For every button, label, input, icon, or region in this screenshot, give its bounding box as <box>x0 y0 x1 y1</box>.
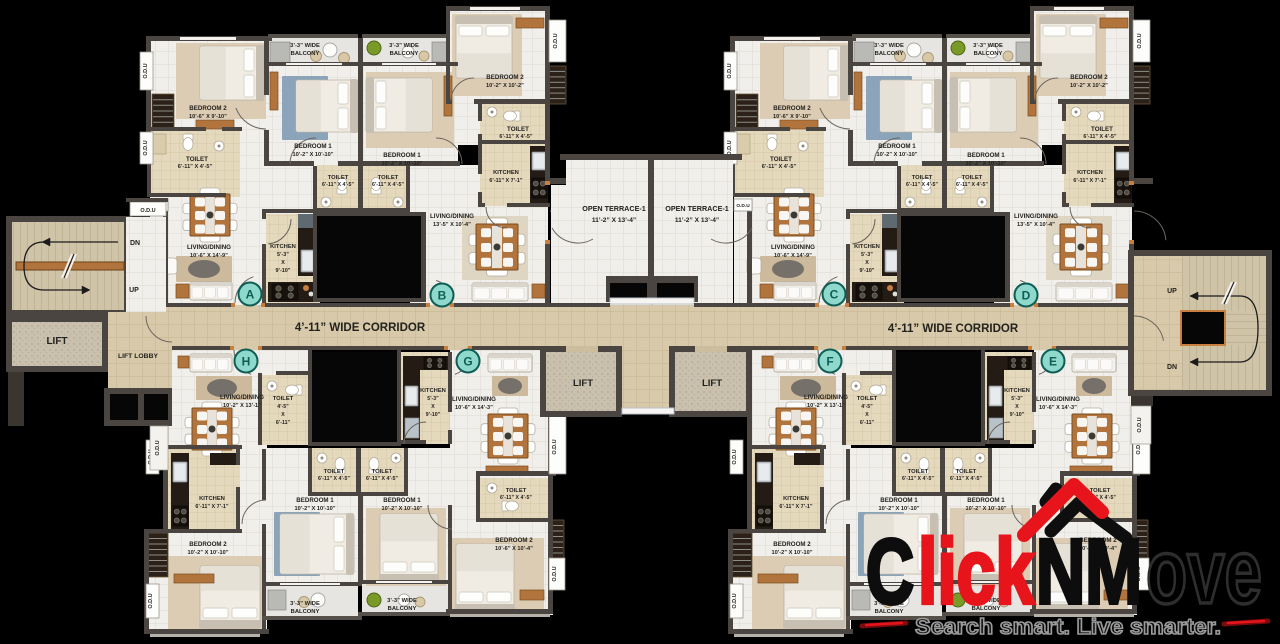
svg-text:BEDROOM 2: BEDROOM 2 <box>486 74 524 81</box>
svg-text:6’-11” X 4’-5”: 6’-11” X 4’-5” <box>318 476 350 482</box>
svg-text:6’-11” X 4’-5”: 6’-11” X 4’-5” <box>322 182 354 188</box>
svg-text:OPEN TERRACE-1: OPEN TERRACE-1 <box>582 204 646 213</box>
svg-text:H: H <box>242 355 251 369</box>
svg-text:10’-2” X 10’-10”: 10’-2” X 10’-10” <box>187 550 228 556</box>
svg-text:BEDROOM 1: BEDROOM 1 <box>383 152 421 159</box>
svg-text:BEDROOM 2: BEDROOM 2 <box>189 541 227 548</box>
svg-text:10’-6” X 14’-9”: 10’-6” X 14’-9” <box>190 253 228 259</box>
svg-text:LIFT LOBBY: LIFT LOBBY <box>118 353 158 360</box>
svg-text:TOILET: TOILET <box>324 469 345 475</box>
svg-text:BEDROOM 1: BEDROOM 1 <box>383 497 421 504</box>
svg-text:LIFT: LIFT <box>573 378 593 389</box>
svg-text:X: X <box>431 404 435 410</box>
svg-text:BEDROOM 2: BEDROOM 2 <box>189 105 227 112</box>
svg-text:TOILET: TOILET <box>328 175 349 181</box>
svg-text:TOILET: TOILET <box>507 126 529 133</box>
svg-text:BALCONY: BALCONY <box>388 606 417 612</box>
svg-text:10’-6” X 14’-3”: 10’-6” X 14’-3” <box>455 405 493 411</box>
svg-text:LIVING/DINING: LIVING/DINING <box>187 244 231 251</box>
svg-text:11’-2” X 13’-4”: 11’-2” X 13’-4” <box>592 217 636 224</box>
svg-text:6’-11” X 4’-5”: 6’-11” X 4’-5” <box>499 134 533 140</box>
svg-text:X: X <box>281 412 285 418</box>
svg-text:4’-11” WIDE CORRIDOR: 4’-11” WIDE CORRIDOR <box>888 323 1019 335</box>
svg-text:F: F <box>826 355 833 369</box>
svg-text:O.D.U: O.D.U <box>1137 417 1143 432</box>
svg-text:6’-11” X 4’-5”: 6’-11” X 4’-5” <box>372 182 404 188</box>
svg-text:10’-2” X 10’-10”: 10’-2” X 10’-10” <box>294 506 335 512</box>
svg-text:O.D.U: O.D.U <box>553 33 559 48</box>
svg-text:10’-2” X 10’-2”: 10’-2” X 10’-2” <box>486 83 524 89</box>
svg-text:BALCONY: BALCONY <box>291 51 320 57</box>
svg-text:UP: UP <box>1167 288 1177 295</box>
svg-text:10’-6” X 10’-4”: 10’-6” X 10’-4” <box>495 546 533 552</box>
svg-text:KITCHEN: KITCHEN <box>420 388 446 394</box>
svg-text:TOILET: TOILET <box>186 156 208 163</box>
svg-text:3’-3” WIDE: 3’-3” WIDE <box>389 43 419 49</box>
svg-text:9’-10”: 9’-10” <box>426 412 441 418</box>
svg-text:A: A <box>246 288 255 302</box>
svg-text:TOILET: TOILET <box>372 469 393 475</box>
svg-text:DN: DN <box>1167 364 1177 371</box>
svg-text:C: C <box>866 521 914 623</box>
svg-text:5’-3”: 5’-3” <box>427 396 439 402</box>
svg-text:6’-11” X 4’-5”: 6’-11” X 4’-5” <box>500 495 532 501</box>
svg-text:O.D.U: O.D.U <box>155 440 161 455</box>
svg-text:B: B <box>438 289 447 303</box>
svg-text:5’-3”: 5’-3” <box>277 252 289 258</box>
svg-text:BEDROOM 1: BEDROOM 1 <box>296 497 334 504</box>
svg-text:KITCHEN: KITCHEN <box>199 496 225 502</box>
svg-text:BALCONY: BALCONY <box>390 51 419 57</box>
svg-text:KITCHEN: KITCHEN <box>493 170 519 176</box>
svg-text:LIVING/DINING: LIVING/DINING <box>452 396 496 403</box>
svg-text:O.D.U: O.D.U <box>143 140 149 155</box>
svg-text:LIFT: LIFT <box>46 336 67 347</box>
svg-text:6’-11” X 7’-1”: 6’-11” X 7’-1” <box>489 178 523 184</box>
svg-text:X: X <box>281 260 285 266</box>
svg-text:Search smart. Live smarter.: Search smart. Live smarter. <box>915 614 1221 639</box>
svg-text:BEDROOM 2: BEDROOM 2 <box>495 537 533 544</box>
svg-text:lick: lick <box>918 521 1035 623</box>
svg-text:NM: NM <box>1036 521 1142 623</box>
svg-text:OPEN TERRACE-1: OPEN TERRACE-1 <box>665 204 729 213</box>
svg-text:TOILET: TOILET <box>273 396 294 402</box>
svg-text:6’-11” X 4’-5”: 6’-11” X 4’-5” <box>366 476 398 482</box>
svg-text:3’-3” WIDE: 3’-3” WIDE <box>290 601 320 607</box>
svg-text:LIVING/DINING: LIVING/DINING <box>220 394 264 401</box>
svg-text:O.D.U: O.D.U <box>148 593 154 608</box>
svg-text:9’-10”: 9’-10” <box>276 268 291 274</box>
svg-text:BALCONY: BALCONY <box>291 609 320 615</box>
svg-text:10’-2” X 10’-10”: 10’-2” X 10’-10” <box>381 506 422 512</box>
svg-text:11’-2” X 13’-4”: 11’-2” X 13’-4” <box>675 217 719 224</box>
svg-text:BEDROOM 1: BEDROOM 1 <box>294 143 332 150</box>
svg-text:TOILET: TOILET <box>506 488 527 494</box>
svg-text:O.D.U: O.D.U <box>552 566 558 581</box>
svg-text:4’-5”: 4’-5” <box>277 404 289 410</box>
svg-text:G: G <box>463 355 472 369</box>
svg-text:C: C <box>830 288 839 302</box>
svg-text:TOILET: TOILET <box>378 175 399 181</box>
svg-text:10’-2” X 10’-10”: 10’-2” X 10’-10” <box>381 161 422 167</box>
svg-text:13’-5” X 10’-4”: 13’-5” X 10’-4” <box>433 222 471 228</box>
svg-text:10’-2” X 13’-1”: 10’-2” X 13’-1” <box>223 403 261 409</box>
svg-text:O.D.U: O.D.U <box>552 439 558 454</box>
svg-text:6’-11” X 4’-5”: 6’-11” X 4’-5” <box>178 164 213 170</box>
svg-text:LIFT: LIFT <box>702 378 722 389</box>
svg-text:KITCHEN: KITCHEN <box>270 244 296 250</box>
svg-text:3’-3” WIDE: 3’-3” WIDE <box>387 598 417 604</box>
svg-text:O.D.U: O.D.U <box>143 63 149 78</box>
svg-text:E: E <box>1049 355 1057 369</box>
svg-text:6’-11”: 6’-11” <box>276 420 291 426</box>
svg-text:LIVING/DINING: LIVING/DINING <box>430 213 474 220</box>
svg-text:UP: UP <box>129 287 139 294</box>
svg-text:6’-11” X 7’-1”: 6’-11” X 7’-1” <box>195 504 229 510</box>
svg-text:4’-11” WIDE CORRIDOR: 4’-11” WIDE CORRIDOR <box>295 322 426 334</box>
svg-text:10’-2” X 10’-10”: 10’-2” X 10’-10” <box>292 152 333 158</box>
svg-text:10’-6” X 9’-10”: 10’-6” X 9’-10” <box>189 114 227 120</box>
svg-text:3’-3” WIDE: 3’-3” WIDE <box>290 43 320 49</box>
svg-text:DN: DN <box>130 240 140 247</box>
svg-text:D: D <box>1022 289 1031 303</box>
svg-text:ove: ove <box>1146 521 1262 623</box>
svg-text:O.D.U: O.D.U <box>140 208 155 214</box>
